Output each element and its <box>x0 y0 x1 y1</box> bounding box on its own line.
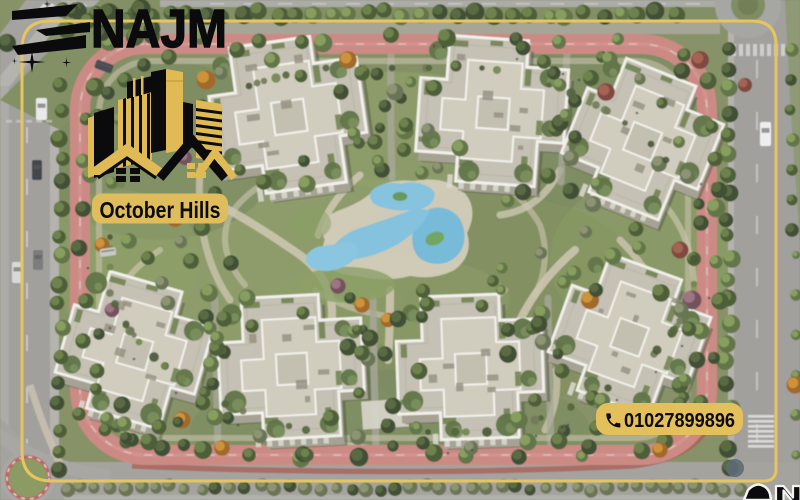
svg-text:01027899896: 01027899896 <box>624 410 735 432</box>
svg-text:NAJM: NAJM <box>91 0 227 59</box>
svg-text:October Hills: October Hills <box>100 197 221 223</box>
